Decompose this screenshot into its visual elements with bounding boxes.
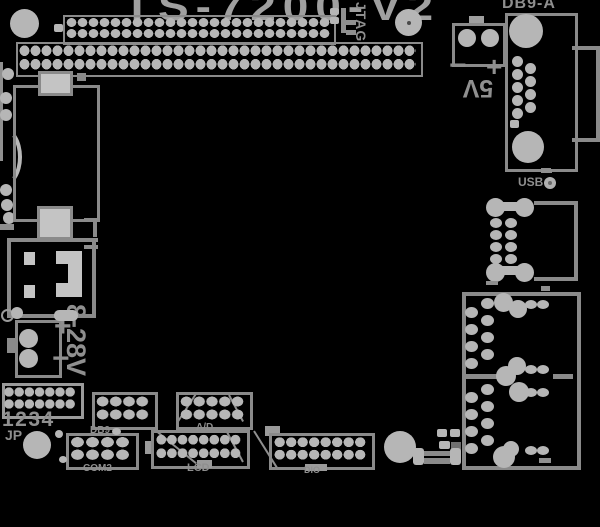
osc-body [439,441,450,449]
lcd-label: LCD [187,463,210,474]
ethernet-pin [465,324,478,335]
mounting-hole-top-left [10,9,39,38]
edge-pad [0,109,12,121]
edge-pad [2,68,14,80]
dio-header-pins [274,436,366,461]
ethernet-pin [465,341,478,352]
5v-label: 5V [461,75,495,100]
db9-pin [525,76,536,87]
ethernet-pin [481,349,494,360]
ethernet-pad [537,365,549,374]
lcd-header-pins [156,433,241,460]
fuse-component [54,310,78,321]
usb-pin [490,230,502,240]
pc104-header-upper-pins [66,17,330,39]
power-pin [19,349,38,368]
cf-slot-outline [13,85,100,222]
ref-designator [541,286,550,291]
osc-bar [424,458,450,464]
ref-designator [544,169,552,173]
via-hole [548,181,552,185]
solder-pad [54,24,63,32]
usb-pin [505,254,517,264]
cf-slot-tab-bottom [37,206,73,240]
ethernet-pad [525,300,537,309]
ethernet-connector-outline [462,292,581,470]
via [112,428,121,435]
db9-faceplate-bracket [572,46,600,142]
osc-pad [450,429,460,437]
usb-pin [490,242,502,252]
cf-slot-tab-small [77,73,86,81]
ethernet-divider [553,374,573,379]
pc104-header-lower-pins [19,44,416,71]
db9-pin [525,89,536,100]
usb-pin [505,242,517,252]
jtag-label: JTAG [354,2,368,42]
usb-pin [490,218,502,228]
usb-label: USB [518,176,543,188]
ethernet-pin [465,392,478,403]
db9-pin [512,82,523,93]
left-jack-notch [56,264,68,283]
db9-header-pins [96,395,149,421]
ad-header-pins [180,395,244,421]
jumper-prefix-label: JP [5,428,22,442]
usb-pin [505,218,517,228]
ethernet-pad [525,388,537,397]
ethernet-pin [465,409,478,420]
ethernet-pin [481,315,494,326]
jumper-block-pins [4,386,75,410]
left-jack-outline [7,238,96,318]
cf-hook [93,218,97,237]
ref-designator [0,224,14,230]
jtag-pad [330,8,339,15]
ethernet-pad [525,446,537,455]
ethernet-pin [481,384,494,395]
osc-bar [424,451,450,456]
usb-shield-bar [494,266,526,275]
ethernet-post [503,441,519,457]
ethernet-pin [465,426,478,437]
ethernet-pin [481,418,494,429]
com2-header-pins [70,436,130,461]
board-diagram: TS-7200-V2 JTAG − + 5V DB9-A USB [0,0,600,527]
db9-pin [512,95,523,106]
power-pin [19,329,38,348]
via [55,430,63,438]
mounting-hole-bottom-middle [384,431,416,463]
db9-square-pad [510,120,519,128]
pad-circle [11,307,23,319]
db9-pin [525,63,536,74]
jtag-pad [330,17,339,24]
cf-slot-tab-top [38,71,73,96]
ethernet-pad [525,365,537,374]
ref-designator [486,281,498,285]
mounting-hole-bottom-left [23,431,51,459]
dio-label: DIO [304,466,320,475]
5v-pin [481,29,499,47]
ethernet-pad [537,446,549,455]
usb-pin [505,230,517,240]
ethernet-pin [481,332,494,343]
osc-post [450,448,461,465]
ethernet-pad [537,300,549,309]
edge-pad [0,184,12,196]
5v-pin [458,29,476,47]
db9-pin [512,108,523,119]
ref-designator [539,458,551,463]
ethernet-pin [481,298,494,309]
usb-bracket [534,201,578,281]
db9-pin [525,102,536,113]
drill-mark [407,21,411,25]
com2-label: COM2 [83,464,112,474]
ethernet-pad [537,388,549,397]
left-jack-pad [24,252,35,265]
db9-pin [512,69,523,80]
ethernet-pin [481,401,494,412]
usb-shield-bar [494,202,526,211]
ethernet-pin [465,307,478,318]
db9-pin [512,56,523,67]
power-connector-tab [7,338,16,353]
ethernet-pin [465,358,478,369]
edge-pad [1,199,13,211]
ethernet-post [508,357,526,375]
db9-connector-label: DB9-A [502,0,556,12]
ad-label: A/D [196,423,213,433]
left-jack-pad [24,285,35,298]
ethernet-pin [465,443,478,454]
db9-jackscrew [509,14,543,48]
edge-pad [0,92,12,104]
osc-pad [437,429,447,437]
ethernet-pin [481,435,494,446]
via [59,456,67,463]
db9-jackscrew [512,131,544,163]
